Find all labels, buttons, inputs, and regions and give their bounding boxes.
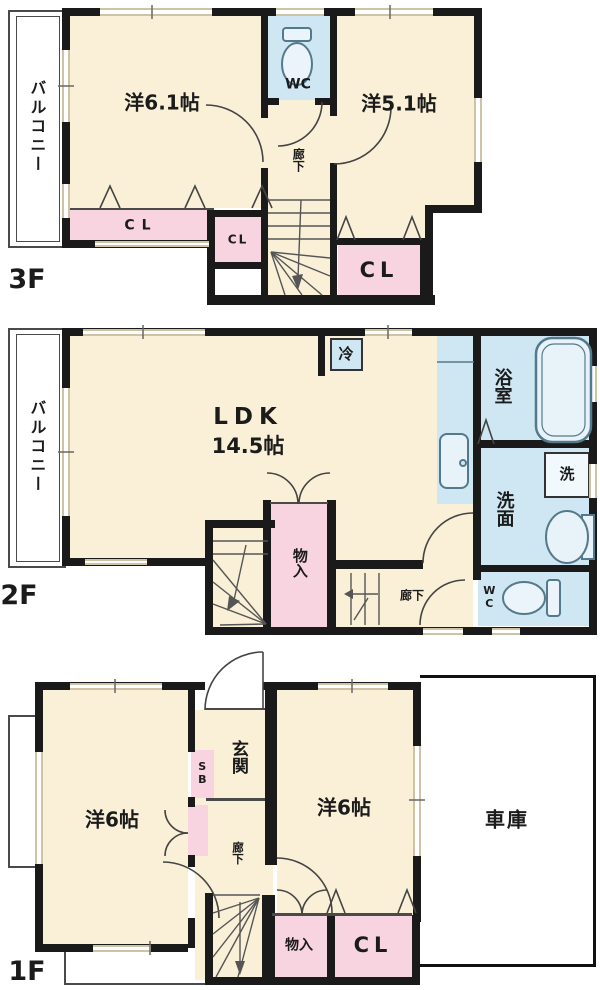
bath-door-pleat [478,420,494,444]
closet-pleat [337,217,355,240]
ldk-label-line2: 14.5帖 [212,435,285,457]
floor-3f-label: 3F [8,266,45,294]
washer-label: 洗 [559,467,574,483]
stairs-arrow-2f [227,596,240,611]
door-arc-hall-closet-top [165,810,188,833]
door-arc-storage-1f-left [277,890,302,915]
wc-3f-label: WC [285,78,311,93]
floor-2f-label: 2F [0,582,37,610]
door-arc-room51-3f [334,107,391,164]
closet-pleat [185,186,205,208]
door-arc-wc-2f [420,580,465,625]
toilet-icon-2f [503,580,560,616]
floorplan: バルコニー 洋6.1帖 WC 廊下 洋5.1帖 CL CL CL 3F バルコニ… [0,0,600,990]
bathtub-icon [536,338,591,442]
hallway-2f-label: 廊下 [400,590,424,603]
shoe-box-label: SB [196,760,208,786]
door-arc-room61-3f [206,105,263,162]
door-arc-front-door [205,652,263,710]
entrance-label: 玄関 [228,740,246,774]
room-1f-left-label: 洋6帖 [85,810,139,831]
room-3f-western61-label: 洋6.1帖 [124,93,199,114]
door-arc-storage-2f-left [267,473,298,504]
closet-pleat [252,186,272,208]
stairs-2f-lower [350,573,379,625]
balcony-3f-label: バルコニー [28,80,45,175]
hallway-1f-label: 廊下 [232,842,244,865]
closet-pleat [403,217,421,240]
stairs-arrow-1f [235,961,245,975]
door-arc-hall-closet-bottom [165,833,188,856]
hallway-3f-label: 廊下 [292,148,305,172]
washroom-label: 洗面 [494,491,513,527]
fridge-label: 冷 [338,347,353,363]
closet-pleat [398,890,416,913]
ldk-label-line1: LDK [213,405,283,429]
storage-2f-label: 物入 [291,548,307,578]
bath-label: 浴室 [492,368,511,404]
garage-label: 車庫 [485,810,529,831]
door-arc-storage-2f-right [299,473,330,504]
door-arc-wc-3f [278,102,322,146]
balcony-2f-label: バルコニー [28,400,45,495]
door-arc-room-left-1f [163,862,219,918]
stairs-arrow-3f [292,274,303,290]
door-arc-ldk-2f [423,513,473,563]
closet-3f-wide-label: CL [124,219,157,234]
closet-3f-right-label: CL [360,259,399,281]
wc-2f-label: WC [483,584,495,610]
washbasin-icon [546,511,594,563]
storage-1f-label: 物入 [285,939,313,954]
floor-1f-label: 1F [8,958,45,986]
closet-pleat [327,890,345,913]
kitchen-sink-icon [437,362,474,488]
room-3f-western51-label: 洋5.1帖 [361,94,436,115]
stairs-2f [213,541,268,625]
closet-3f-small-label: CL [228,234,248,247]
closet-pleat [100,186,120,208]
closet-1f-label: CL [354,934,393,956]
stairs-arrow-2f-lower [344,589,353,599]
room-1f-right-label: 洋6帖 [317,798,371,819]
door-arc-storage-1f-right [302,890,327,915]
